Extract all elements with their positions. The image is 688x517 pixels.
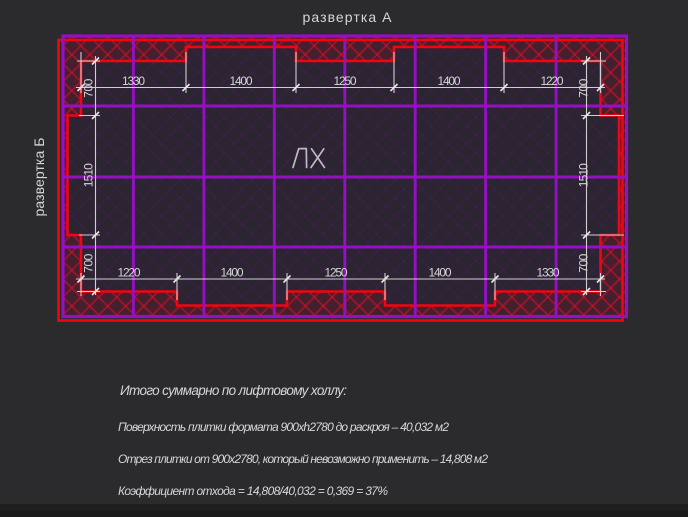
svg-text:Коэффициент отхода = 14,808/40: Коэффициент отхода = 14,808/40,032 = 0,3… — [118, 484, 388, 498]
svg-text:700: 700 — [577, 253, 591, 272]
svg-text:700: 700 — [82, 253, 96, 272]
svg-text:1400: 1400 — [230, 74, 253, 88]
svg-text:Итого суммарно по лифтовому хо: Итого суммарно по лифтовому холлу: — [120, 383, 347, 398]
svg-text:1220: 1220 — [118, 266, 141, 280]
svg-text:развертка Б: развертка Б — [31, 138, 47, 217]
svg-text:Отрез плитки от 900х2780, кото: Отрез плитки от 900х2780, который невозм… — [118, 452, 488, 466]
svg-text:700: 700 — [82, 78, 96, 97]
svg-text:1220: 1220 — [541, 74, 564, 88]
svg-text:Поверхность плитки формата 900: Поверхность плитки формата 900хh2780 до … — [118, 420, 449, 434]
svg-text:1400: 1400 — [438, 74, 461, 88]
svg-text:1510: 1510 — [82, 163, 96, 187]
svg-text:развертка А: развертка А — [303, 9, 393, 25]
svg-text:1330: 1330 — [122, 74, 145, 88]
svg-text:1400: 1400 — [221, 266, 244, 280]
svg-text:1400: 1400 — [429, 266, 452, 280]
svg-text:1250: 1250 — [334, 74, 357, 88]
svg-text:1330: 1330 — [537, 266, 560, 280]
svg-text:1250: 1250 — [325, 266, 348, 280]
svg-text:1510: 1510 — [577, 163, 591, 187]
svg-text:700: 700 — [577, 78, 591, 97]
